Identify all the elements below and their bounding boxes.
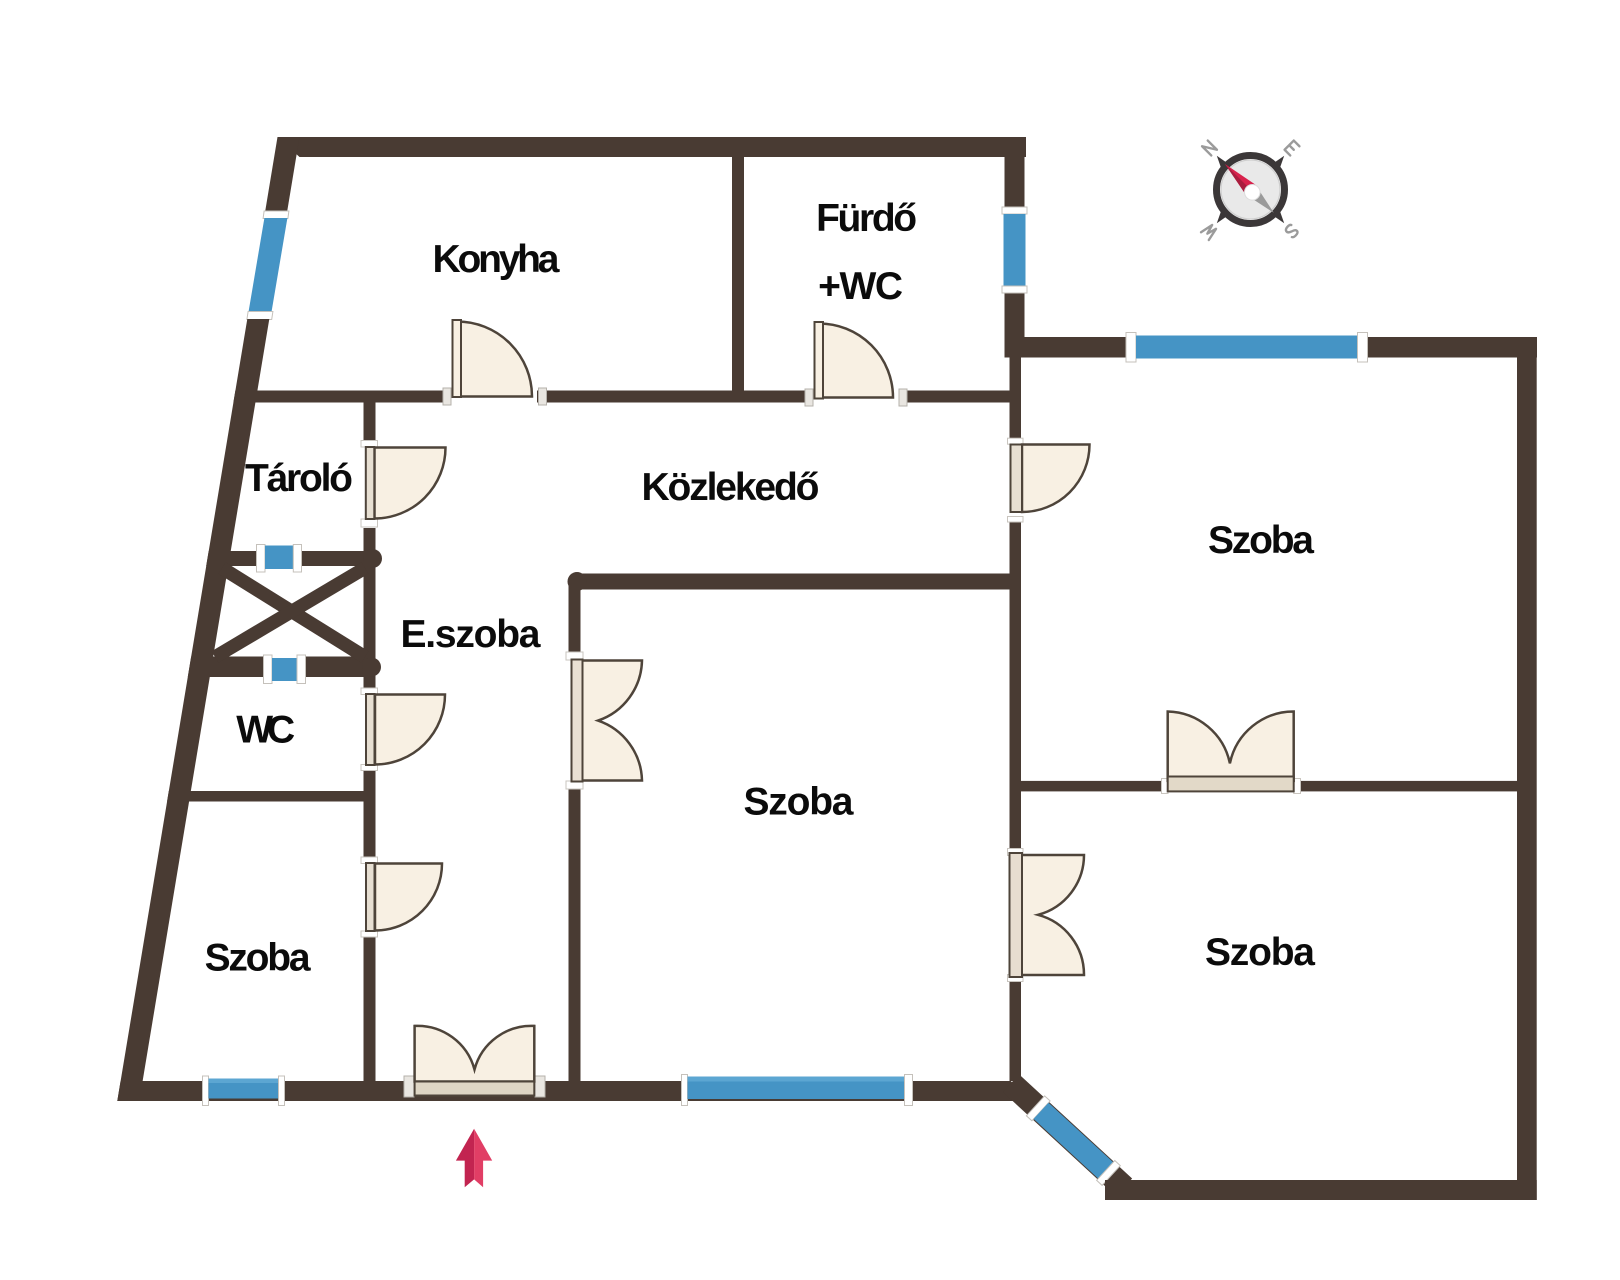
svg-text:E.szoba: E.szoba bbox=[401, 613, 541, 656]
svg-text:WC: WC bbox=[236, 709, 295, 752]
svg-text:Tároló: Tároló bbox=[245, 457, 353, 500]
svg-text:Konyha: Konyha bbox=[433, 238, 560, 281]
svg-text:Szoba: Szoba bbox=[744, 780, 854, 823]
svg-text:+WC: +WC bbox=[818, 265, 903, 308]
svg-text:Közlekedő: Közlekedő bbox=[642, 466, 820, 509]
svg-text:Fürdő: Fürdő bbox=[816, 197, 917, 240]
svg-text:Szoba: Szoba bbox=[1208, 519, 1314, 562]
svg-text:Szoba: Szoba bbox=[1205, 931, 1315, 974]
svg-text:Szoba: Szoba bbox=[205, 937, 311, 980]
